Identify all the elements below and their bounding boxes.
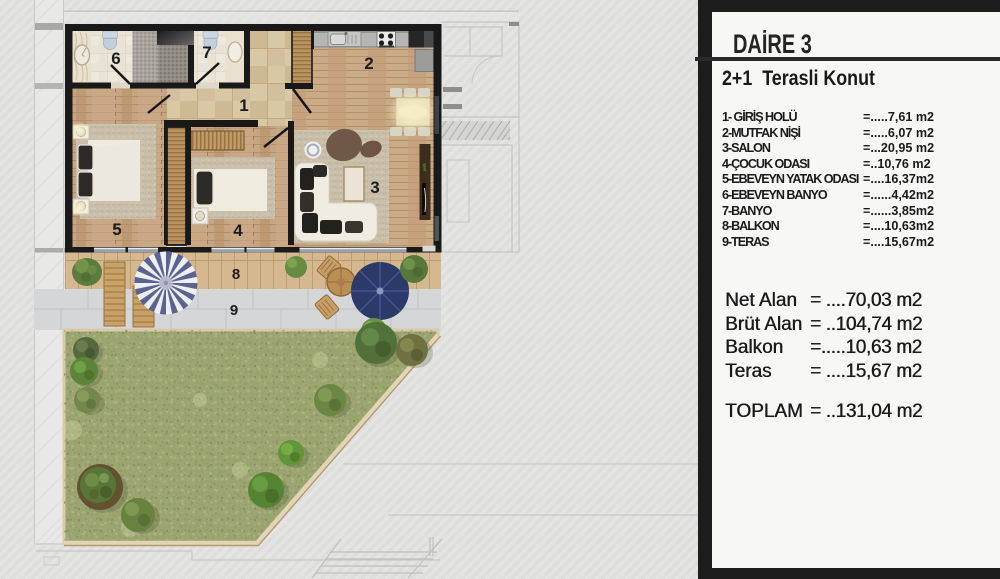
svg-text:9: 9 bbox=[230, 302, 238, 319]
svg-text:3: 3 bbox=[370, 178, 379, 197]
svg-text:2: 2 bbox=[364, 54, 373, 73]
svg-text:5: 5 bbox=[112, 220, 121, 239]
svg-text:8: 8 bbox=[232, 266, 240, 283]
svg-text:4: 4 bbox=[233, 221, 243, 240]
svg-text:7: 7 bbox=[202, 43, 211, 62]
svg-text:1: 1 bbox=[239, 96, 248, 115]
